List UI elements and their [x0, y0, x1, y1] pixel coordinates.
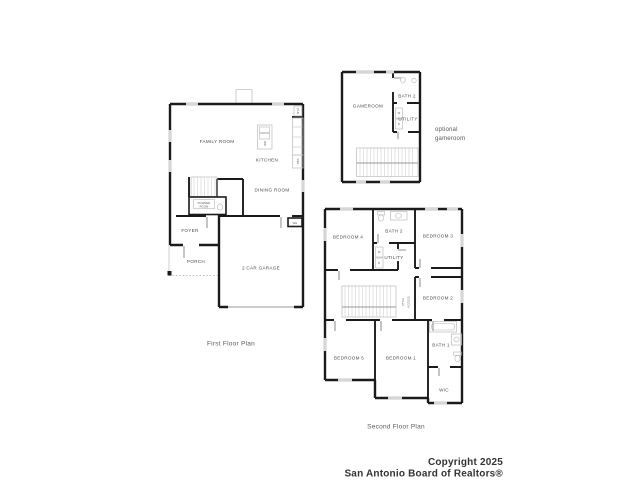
water-heater: WH — [288, 218, 302, 227]
sink-icon — [454, 337, 459, 342]
dining-room-label: DINING ROOM — [255, 188, 290, 193]
bath1-label: BATH 1 — [432, 343, 450, 348]
bedroom2-label: BEDROOM 2 — [423, 296, 453, 301]
bath2-label: BATH 2 — [385, 229, 403, 234]
dishwasher-label: DW — [263, 141, 267, 146]
sink-icon — [260, 127, 270, 133]
attic-access-label-line2: ACCESS — [407, 296, 411, 308]
powder-room-label-line1: POWDER — [198, 201, 211, 205]
sink-icon — [260, 134, 270, 140]
water-heater-label: WH — [293, 221, 298, 225]
washer-label: W — [378, 250, 381, 254]
garage-label: 2 CAR GARAGE — [242, 266, 280, 271]
toilet-icon — [455, 355, 460, 361]
powder-room: POWDER ROOM — [189, 197, 226, 215]
gameroom-label: GAMEROOM — [353, 104, 383, 109]
dryer-label: D — [378, 261, 380, 265]
first-floor-door-leaves — [184, 217, 281, 258]
wic-label: WIC — [439, 388, 449, 393]
toilet-icon — [378, 215, 383, 221]
second-floor-washer-dryer: W D — [376, 247, 384, 268]
second-floor-plan: W D BEDROOM 4 BATH 2 BEDROOM 3 UTILITY A… — [325, 209, 462, 431]
sink-icon — [396, 214, 402, 219]
dryer-label: D — [398, 122, 400, 126]
porch-label: PORCH — [187, 259, 205, 264]
second-floor-stairs — [342, 286, 396, 317]
family-room-label: FAMILY ROOM — [200, 139, 235, 144]
first-floor-outer-walls — [170, 104, 303, 307]
kitchen-label: KITCHEN — [256, 158, 278, 163]
first-floor-title: First Floor Plan — [207, 341, 255, 348]
floor-plan-drawing: POWDER ROOM DW REF PAN WH — [0, 0, 640, 480]
gameroom-bath2-label: BATH 2 — [398, 94, 416, 99]
porch-post — [168, 271, 172, 276]
first-floor-plan: POWDER ROOM DW REF PAN WH — [168, 90, 304, 348]
optional-note-line1: optional — [435, 127, 458, 133]
gameroom-bath-fixtures — [401, 77, 417, 83]
second-floor-title: Second Floor Plan — [367, 424, 425, 431]
first-floor-interior-walls — [176, 117, 303, 216]
bedroom5-label: BEDROOM 5 — [334, 356, 364, 361]
kitchen-counter: REF PAN — [293, 106, 304, 168]
attic-access-label-line1: ATTIC — [401, 298, 405, 306]
bedroom3-label: BEDROOM 3 — [423, 234, 453, 239]
kitchen-island: DW — [258, 125, 273, 149]
copyright-line1: Copyright 2025 — [428, 457, 503, 468]
gameroom-utility-label: UTILITY — [398, 117, 417, 122]
gameroom-door-leaves — [394, 78, 401, 139]
utility-label: UTILITY — [384, 255, 403, 260]
gameroom-stairs — [357, 148, 419, 177]
copyright-line2: San Antonio Board of Realtors® — [344, 469, 503, 480]
optional-gameroom-plan: W D GAMEROOM BATH 2 UTILITY optional gam… — [342, 72, 465, 182]
powder-toilet-icon — [217, 204, 222, 210]
foyer-label: FOYER — [181, 228, 199, 233]
sink-icon — [412, 78, 416, 82]
washer-label: W — [398, 111, 401, 115]
optional-note-line2: gameroom — [435, 136, 465, 142]
bedroom1-label: BEDROOM 1 — [386, 356, 416, 361]
powder-room-label-line2: ROOM — [200, 205, 209, 209]
bedroom4-label: BEDROOM 4 — [333, 235, 363, 240]
floor-plan-page: POWDER ROOM DW REF PAN WH — [0, 0, 640, 480]
fireplace-outline — [236, 90, 252, 105]
toilet-icon — [401, 77, 406, 83]
second-floor-bath2-fixtures — [378, 212, 408, 222]
pantry-label: PAN — [296, 108, 300, 114]
tub-icon — [430, 322, 457, 333]
refrigerator-label: REF — [296, 159, 300, 165]
first-floor-stairs — [191, 177, 217, 197]
copyright-block: Copyright 2025 San Antonio Board of Real… — [344, 457, 503, 480]
